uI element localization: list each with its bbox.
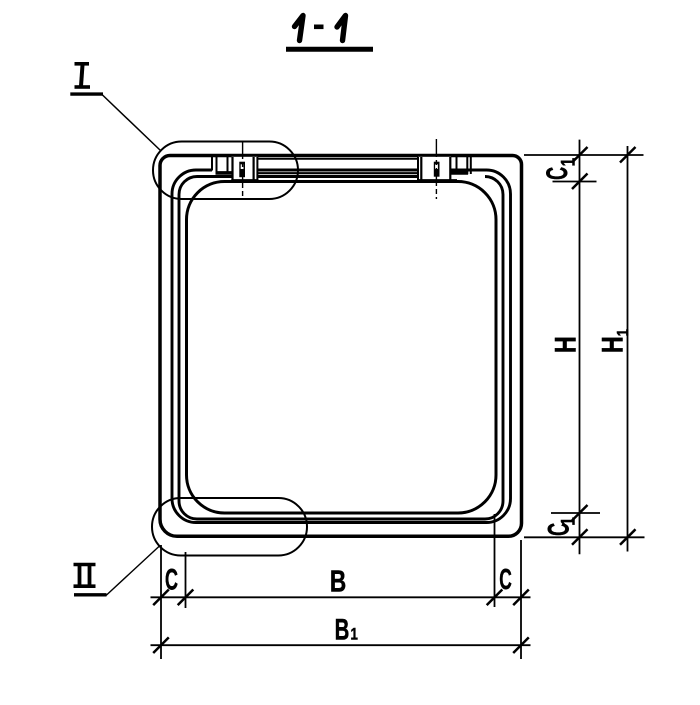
- svg-text:C: C: [165, 564, 178, 597]
- svg-text:1: 1: [615, 329, 633, 336]
- svg-text:B: B: [335, 614, 350, 647]
- svg-text:H: H: [596, 336, 629, 353]
- svg-text:C: C: [499, 564, 512, 597]
- svg-text:H: H: [549, 336, 582, 353]
- svg-text:C: C: [541, 167, 574, 180]
- svg-text:B: B: [330, 563, 346, 598]
- svg-text:1: 1: [557, 158, 579, 167]
- svg-text:1: 1: [557, 517, 579, 526]
- svg-text:1: 1: [351, 625, 358, 644]
